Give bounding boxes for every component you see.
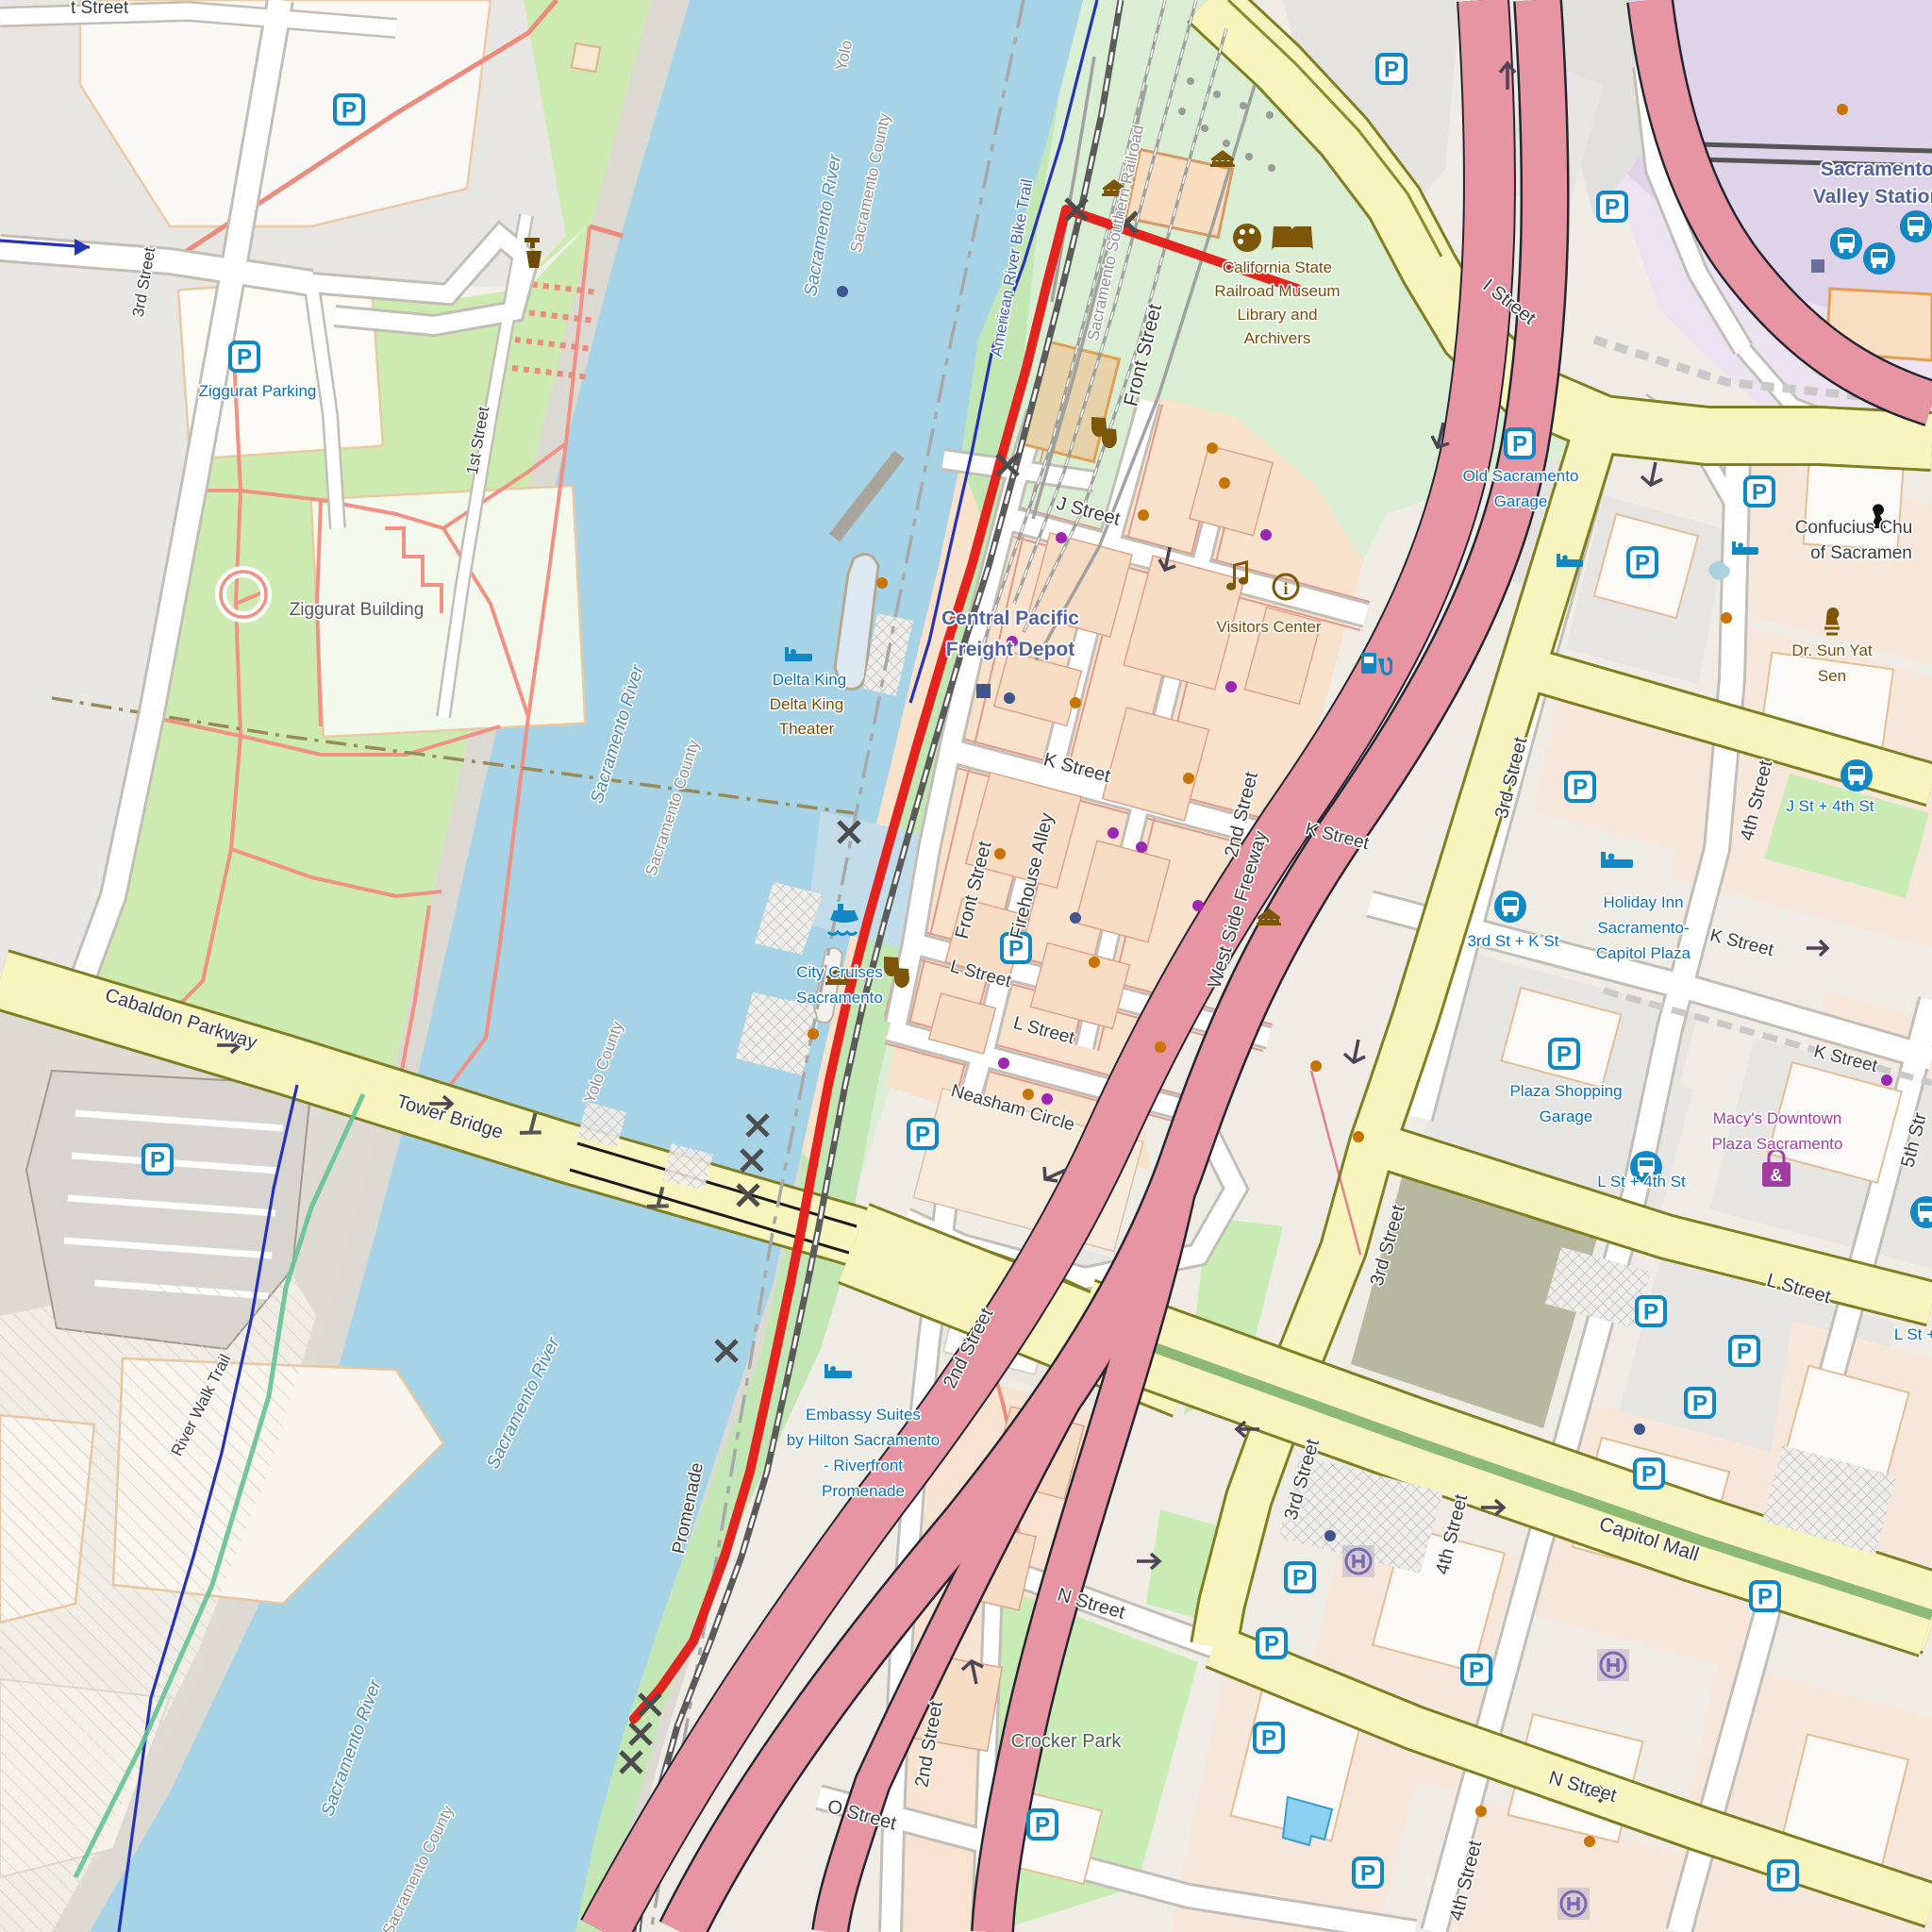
svg-text:Holiday Inn: Holiday Inn [1603,893,1683,911]
svg-text:City Cruises: City Cruises [796,963,883,981]
svg-text:L St + 4th St: L St + 4th St [1597,1173,1686,1191]
svg-text:L St +: L St + [1894,1325,1932,1343]
svg-text:California State: California State [1223,258,1332,276]
svg-text:Confucius Chu: Confucius Chu [1795,518,1913,538]
svg-text:Capitol Plaza: Capitol Plaza [1596,944,1691,962]
svg-text:Railroad Museum: Railroad Museum [1214,282,1340,300]
svg-text:Sacramento: Sacramento [796,989,883,1007]
svg-text:Ziggurat Parking: Ziggurat Parking [199,382,317,400]
svg-text:Macy's Downtown: Macy's Downtown [1713,1109,1841,1127]
svg-text:J St + 4th St: J St + 4th St [1786,797,1874,815]
svg-text:Ziggurat Building: Ziggurat Building [290,600,425,620]
svg-text:Sen: Sen [1818,667,1846,685]
svg-text:Old Sacramento: Old Sacramento [1463,467,1579,485]
svg-text:3rd St + K St: 3rd St + K St [1468,932,1559,950]
svg-text:of Sacramen: of Sacramen [1810,543,1912,563]
svg-text:Embassy Suites: Embassy Suites [806,1406,921,1424]
svg-text:Dr. Sun Yat: Dr. Sun Yat [1791,641,1873,659]
svg-text:i: i [1283,579,1288,598]
svg-text:Sacramento-: Sacramento- [1597,919,1689,937]
svg-text:Promenade: Promenade [822,1482,905,1500]
svg-text:Valley Station: Valley Station [1813,186,1932,208]
svg-text:Freight Depot: Freight Depot [946,639,1075,660]
svg-text:Delta King: Delta King [770,695,843,713]
svg-text:Library and: Library and [1237,306,1317,324]
svg-text:Central Pacific: Central Pacific [941,608,1079,629]
svg-text:Theater: Theater [779,720,835,738]
svg-text:Archivers: Archivers [1244,329,1311,347]
svg-text:Garage: Garage [1540,1108,1593,1125]
svg-text:Garage: Garage [1494,492,1548,510]
svg-text:Crocker Park: Crocker Park [1011,1731,1123,1752]
svg-text:Plaza Shopping: Plaza Shopping [1509,1082,1622,1100]
svg-text:by Hilton Sacramento: by Hilton Sacramento [787,1431,941,1449]
svg-text:&: & [1771,1166,1783,1185]
svg-text:Delta King: Delta King [773,671,846,689]
svg-text:Plaza Sacramento: Plaza Sacramento [1712,1135,1843,1153]
svg-text:- Riverfront: - Riverfront [824,1457,903,1474]
svg-text:Sacramento: Sacramento [1821,158,1932,180]
svg-text:t Street: t Street [71,0,129,18]
svg-text:Visitors Center: Visitors Center [1216,618,1322,636]
